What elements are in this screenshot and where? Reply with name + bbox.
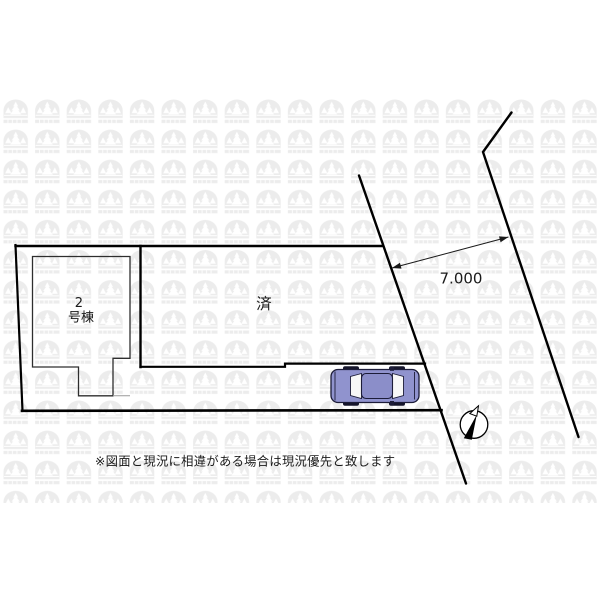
car-rear-window (351, 374, 362, 399)
building-label-number: 2 (75, 296, 83, 311)
car-mirror-top (390, 367, 394, 371)
watermark-pattern (0, 97, 600, 503)
car-windshield (393, 374, 404, 399)
building-label-suffix: 号棟 (68, 311, 94, 326)
car-mirror-bottom (390, 401, 394, 405)
plot-bottom-edge (22, 410, 442, 411)
site-plan-drawing: 2 号棟 済 7.000 (0, 0, 600, 600)
sold-label: 済 (256, 295, 272, 313)
disclaimer-text: ※図面と現況に相違がある場合は現況優先と致します (95, 454, 395, 469)
car-roof (362, 374, 393, 399)
car-icon (331, 366, 419, 406)
site-plan-canvas: 2 号棟 済 7.000 (0, 0, 600, 600)
road-width-label: 7.000 (440, 270, 483, 288)
